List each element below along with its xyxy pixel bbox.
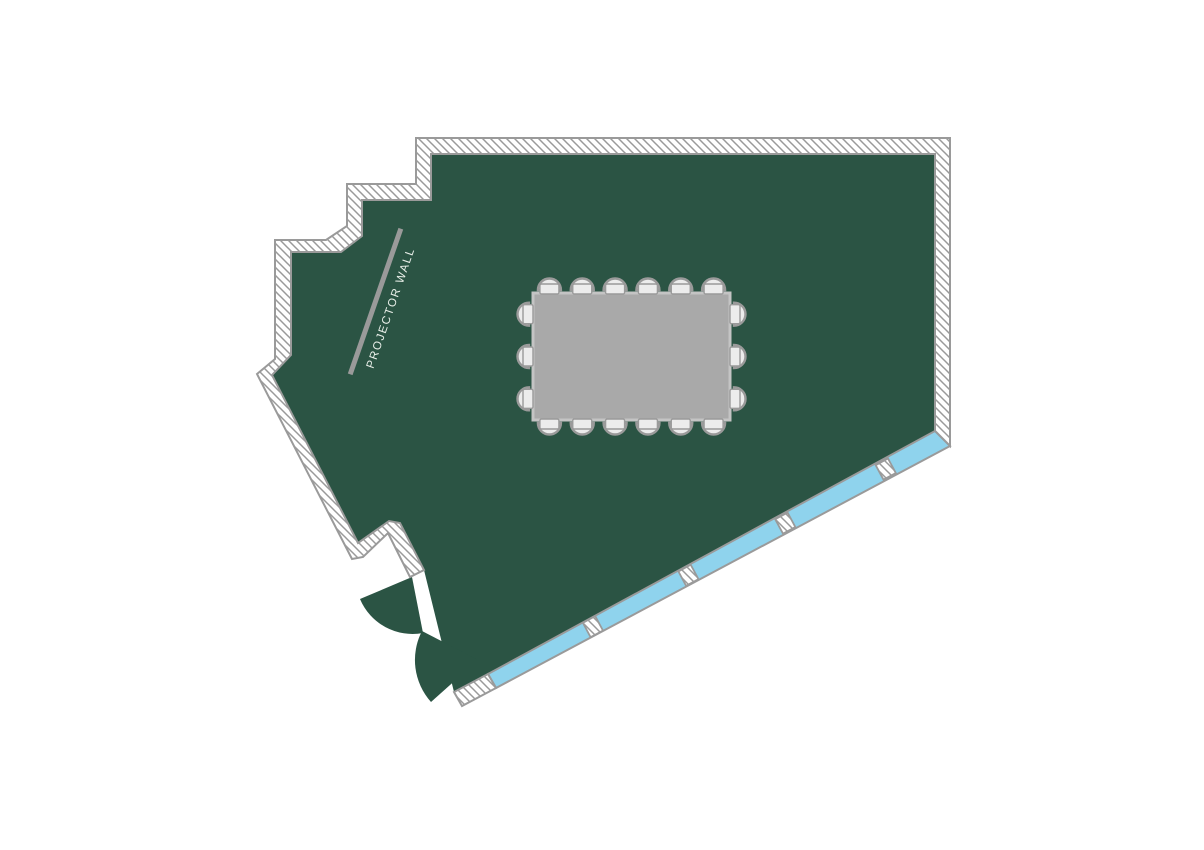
chair[interactable] <box>702 419 725 435</box>
door-swing[interactable] <box>360 577 423 634</box>
floor-plan-canvas: PROJECTOR WALL <box>0 0 1204 850</box>
conference-table[interactable] <box>533 293 730 420</box>
chair[interactable] <box>669 419 692 435</box>
chair[interactable] <box>604 419 627 435</box>
chair[interactable] <box>571 279 594 295</box>
chair[interactable] <box>518 387 534 410</box>
chair[interactable] <box>636 279 659 295</box>
chair[interactable] <box>702 279 725 295</box>
chair[interactable] <box>604 279 627 295</box>
chair[interactable] <box>538 279 561 295</box>
chair[interactable] <box>730 303 746 326</box>
chair[interactable] <box>636 419 659 435</box>
chair[interactable] <box>518 303 534 326</box>
chair[interactable] <box>730 345 746 368</box>
chair[interactable] <box>518 345 534 368</box>
chair[interactable] <box>730 387 746 410</box>
chair[interactable] <box>669 279 692 295</box>
chair[interactable] <box>538 419 561 435</box>
chair[interactable] <box>571 419 594 435</box>
